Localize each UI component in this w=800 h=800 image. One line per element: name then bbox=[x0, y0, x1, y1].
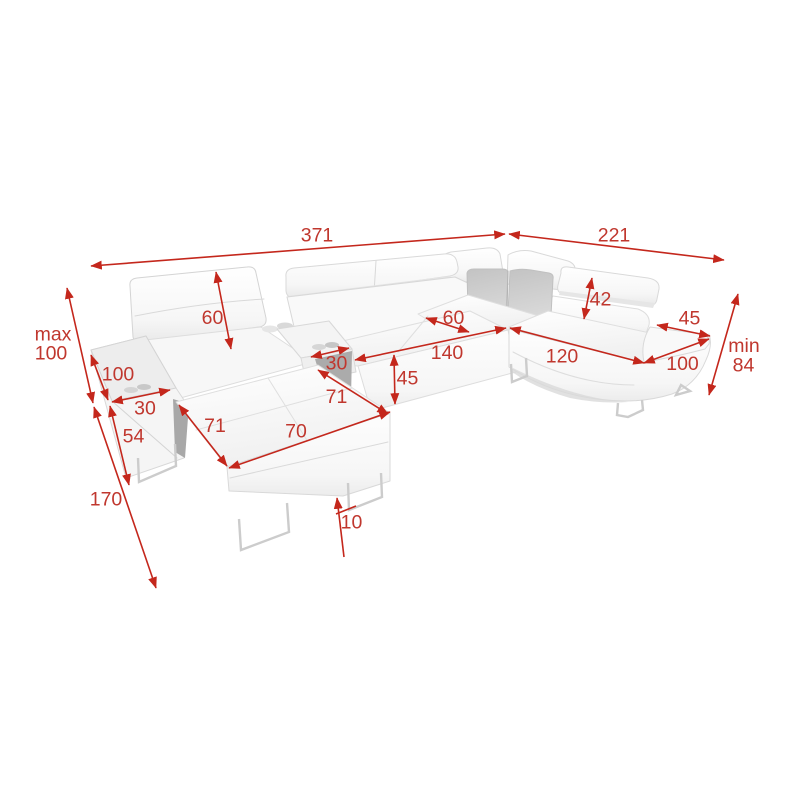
svg-text:70: 70 bbox=[285, 421, 307, 443]
svg-text:42: 42 bbox=[590, 289, 612, 311]
svg-text:30: 30 bbox=[134, 398, 156, 420]
svg-text:60: 60 bbox=[202, 307, 224, 329]
svg-text:140: 140 bbox=[431, 342, 464, 364]
svg-text:170: 170 bbox=[90, 489, 123, 511]
svg-text:100: 100 bbox=[102, 364, 135, 386]
svg-text:120: 120 bbox=[546, 346, 579, 368]
svg-text:45: 45 bbox=[679, 308, 701, 330]
svg-text:221: 221 bbox=[598, 225, 631, 247]
svg-text:54: 54 bbox=[123, 426, 145, 448]
svg-text:100: 100 bbox=[666, 353, 699, 375]
svg-text:30: 30 bbox=[326, 353, 348, 375]
svg-text:371: 371 bbox=[301, 225, 334, 247]
svg-text:10: 10 bbox=[341, 512, 363, 534]
svg-text:45: 45 bbox=[397, 368, 419, 390]
svg-text:71: 71 bbox=[326, 386, 348, 408]
svg-text:71: 71 bbox=[204, 415, 226, 437]
svg-text:60: 60 bbox=[443, 307, 465, 329]
svg-text:84: 84 bbox=[733, 355, 755, 377]
svg-text:100: 100 bbox=[35, 343, 68, 365]
